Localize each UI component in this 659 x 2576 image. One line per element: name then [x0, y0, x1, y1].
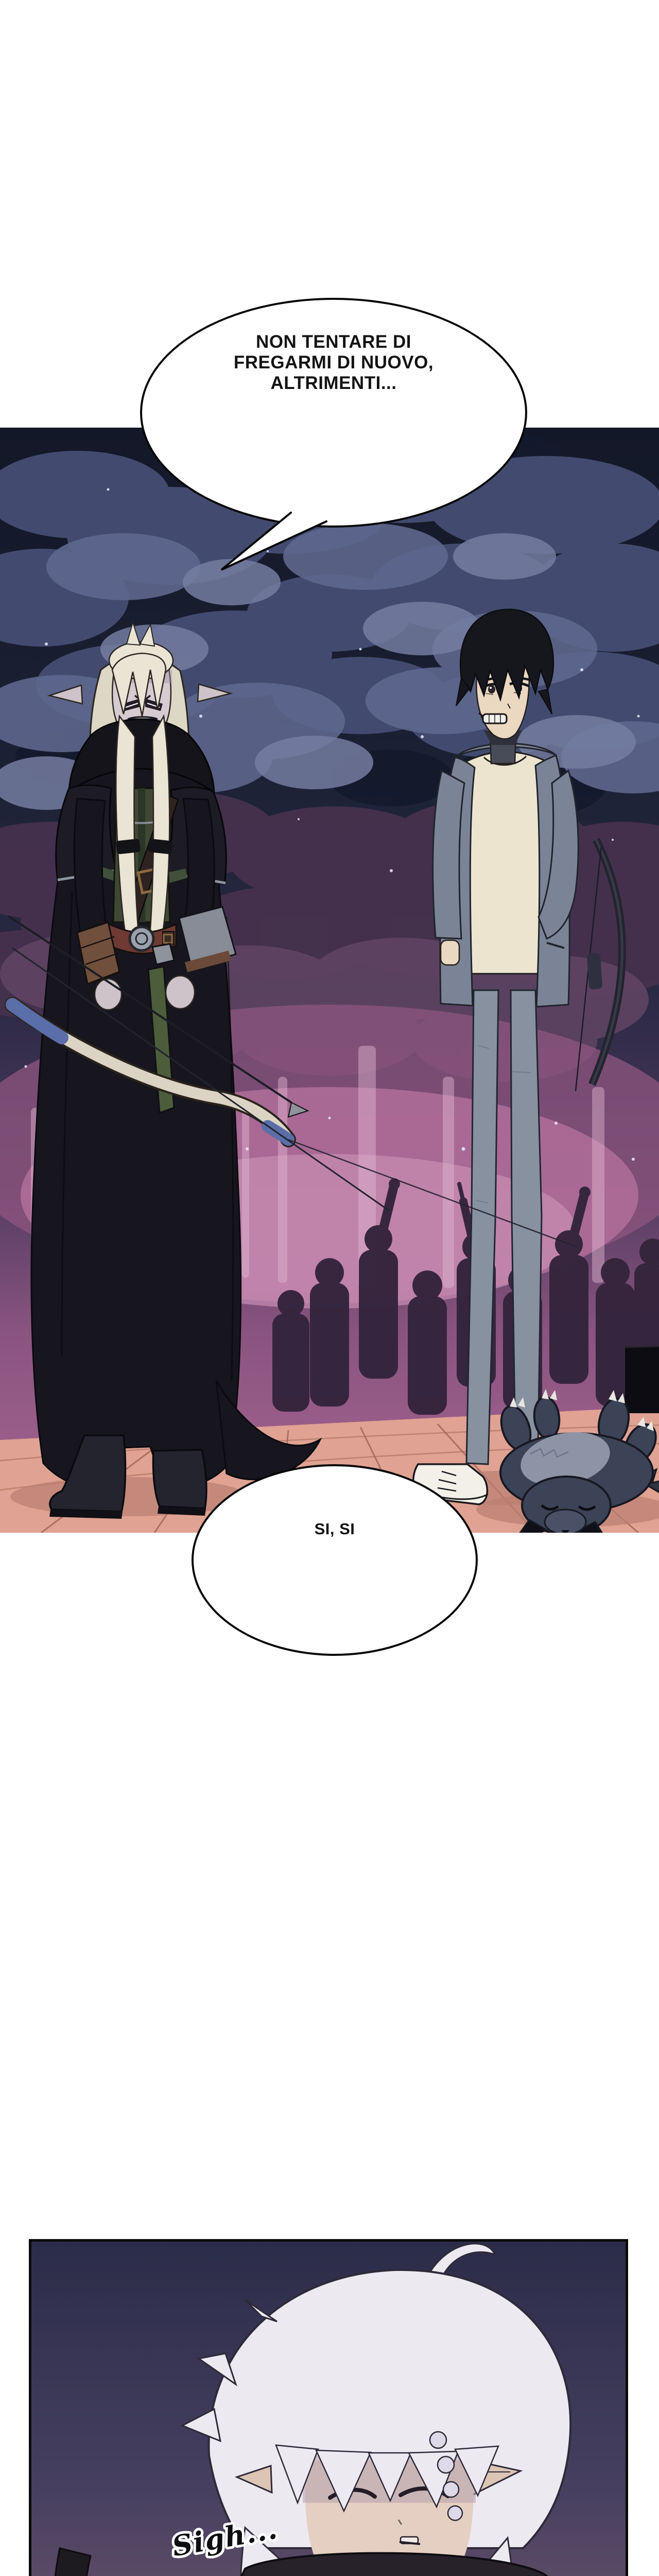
elf-hand-right	[166, 976, 195, 1009]
bubble-middle-line-1: SI, SI	[315, 1520, 355, 1538]
elf2-mouth	[400, 2537, 420, 2544]
bubble-top-line-3: ALTRIMENTI...	[271, 373, 397, 394]
speech-bubble-top: NON TENTARE DI FREGARMI DI NUOVO, ALTRIM…	[140, 298, 527, 528]
bubble-top-line-2: FREGARMI DI NUOVO,	[234, 352, 433, 373]
panel-1	[0, 428, 659, 1533]
manga-page: Sigh... NON TENTARE DI FREGARMI DI NUOVO…	[0, 0, 659, 2576]
bubble-top-line-1: NON TENTARE DI	[256, 332, 411, 352]
panel-2: Sigh...	[29, 2239, 628, 2576]
black-box	[625, 1346, 659, 1413]
elf-hand-left	[95, 979, 122, 1010]
speech-bubble-middle: SI, SI	[192, 1464, 478, 1656]
man-left-sleeve	[433, 771, 464, 939]
